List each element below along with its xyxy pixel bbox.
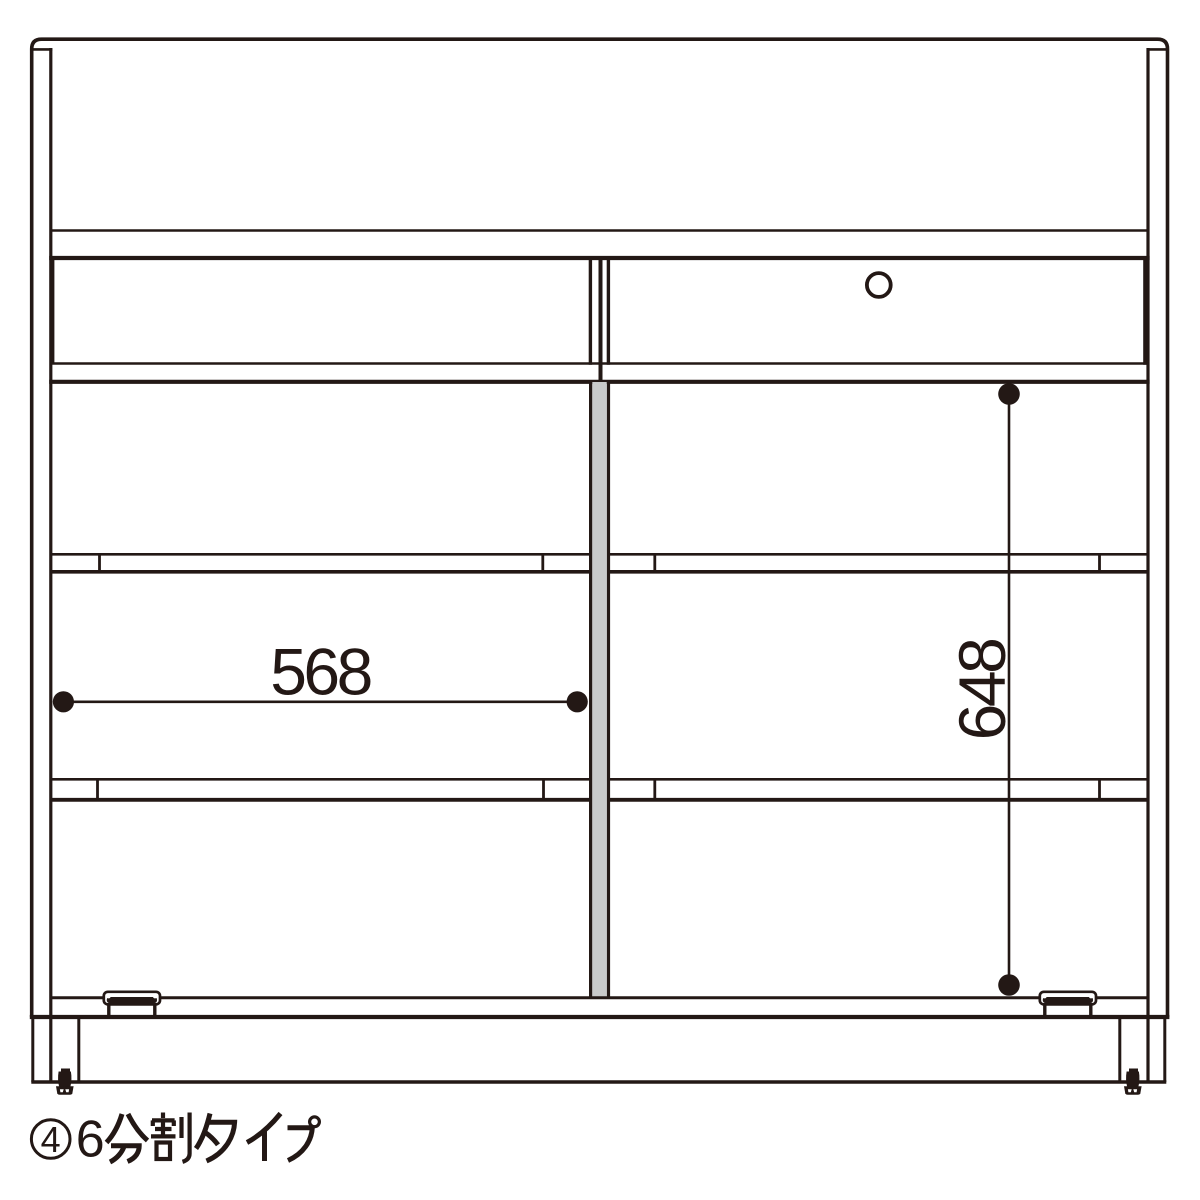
svg-text:6: 6: [76, 1111, 105, 1169]
svg-text:568: 568: [270, 635, 370, 709]
svg-text:4: 4: [41, 1119, 61, 1160]
svg-text:648: 648: [945, 640, 1019, 740]
